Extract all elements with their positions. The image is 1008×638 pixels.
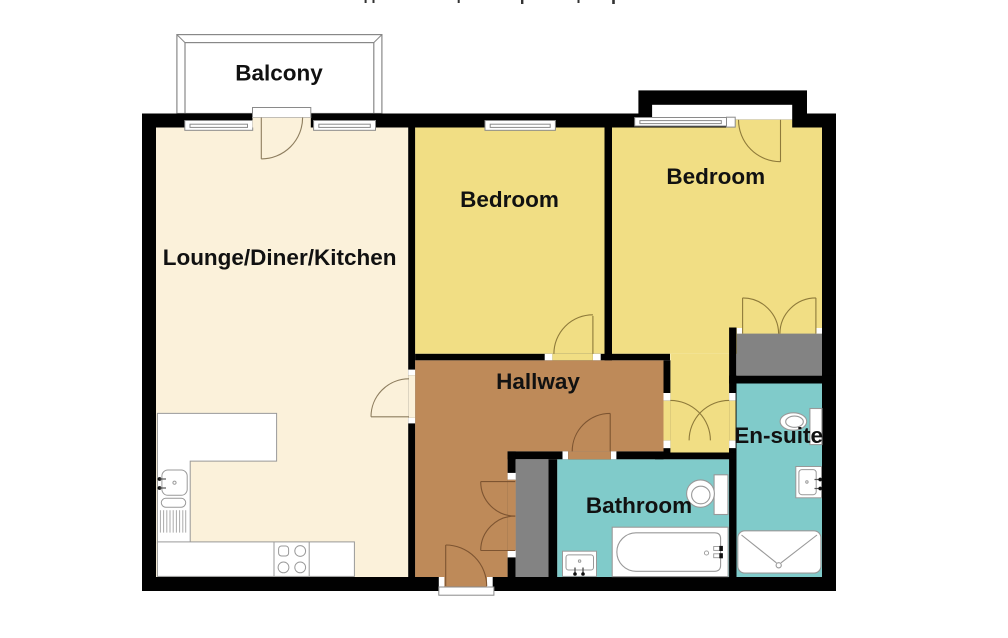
- svg-text:Hallway: Hallway: [496, 369, 580, 394]
- svg-text:Bedroom: Bedroom: [666, 164, 765, 189]
- svg-text:Lounge/Diner/Kitchen: Lounge/Diner/Kitchen: [163, 245, 397, 270]
- svg-text:Bathroom: Bathroom: [586, 493, 692, 518]
- svg-text:Balcony: Balcony: [235, 60, 323, 85]
- svg-text:Bedroom: Bedroom: [460, 187, 559, 212]
- svg-text:En-suite: En-suite: [734, 423, 823, 448]
